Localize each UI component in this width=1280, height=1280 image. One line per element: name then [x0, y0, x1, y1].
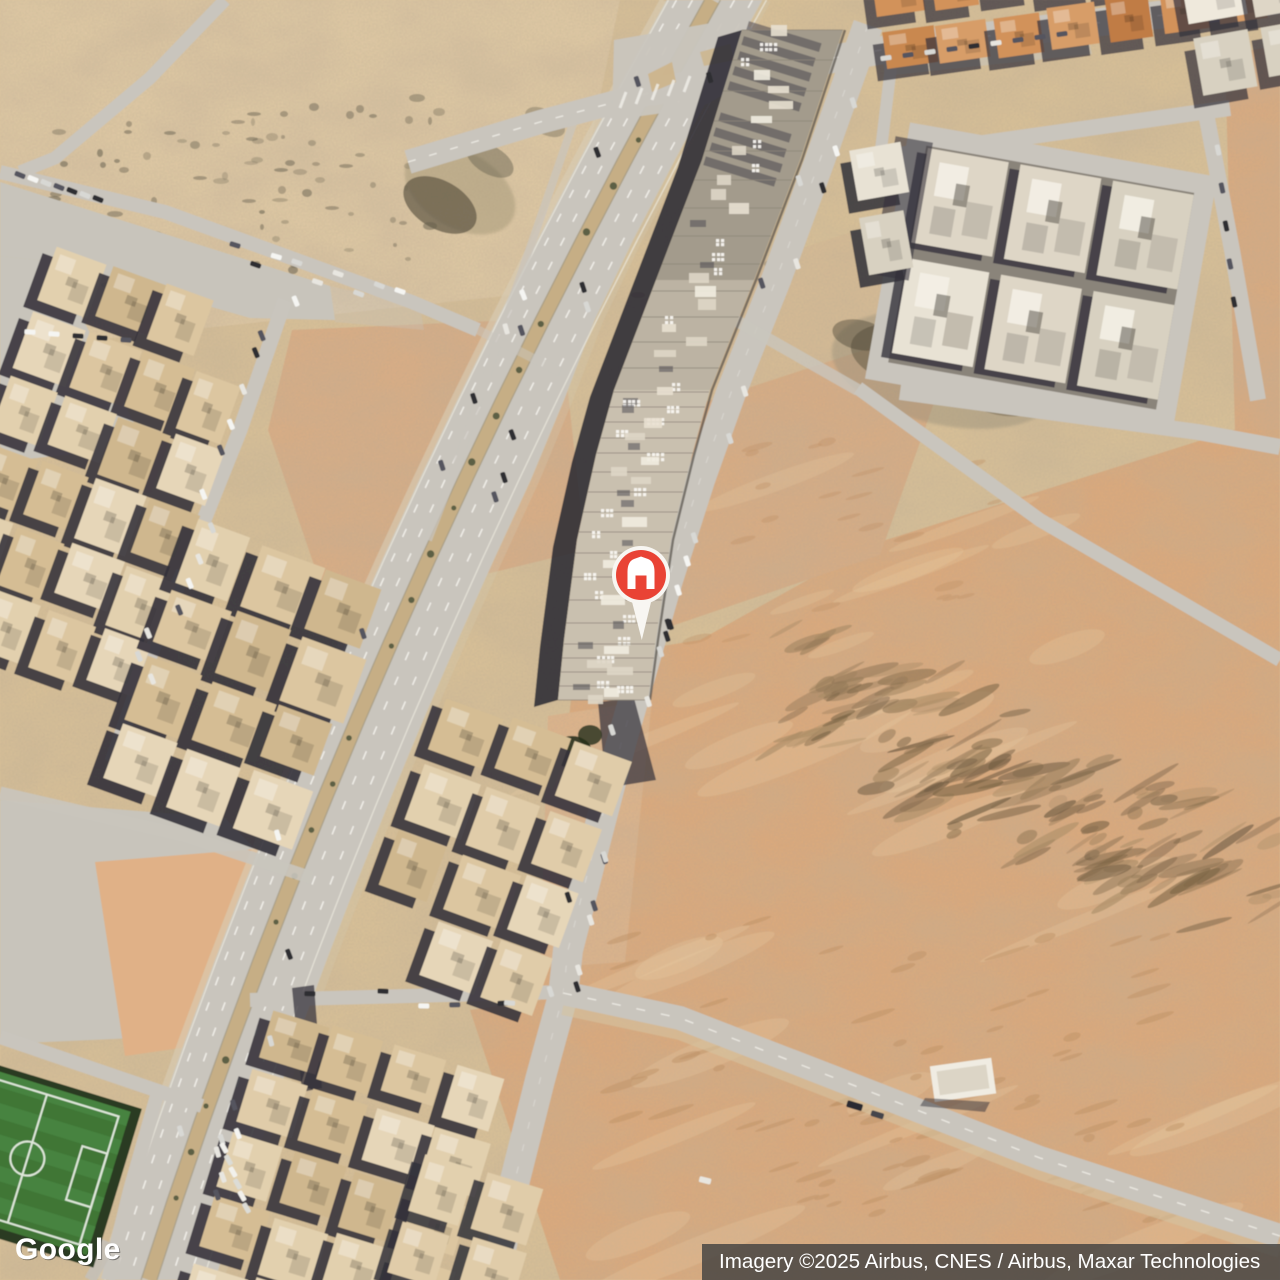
svg-text:Imagery ©2025 Airbus, CNES / A: Imagery ©2025 Airbus, CNES / Airbus, Max…: [719, 1250, 1260, 1273]
svg-text:Google: Google: [15, 1233, 121, 1266]
